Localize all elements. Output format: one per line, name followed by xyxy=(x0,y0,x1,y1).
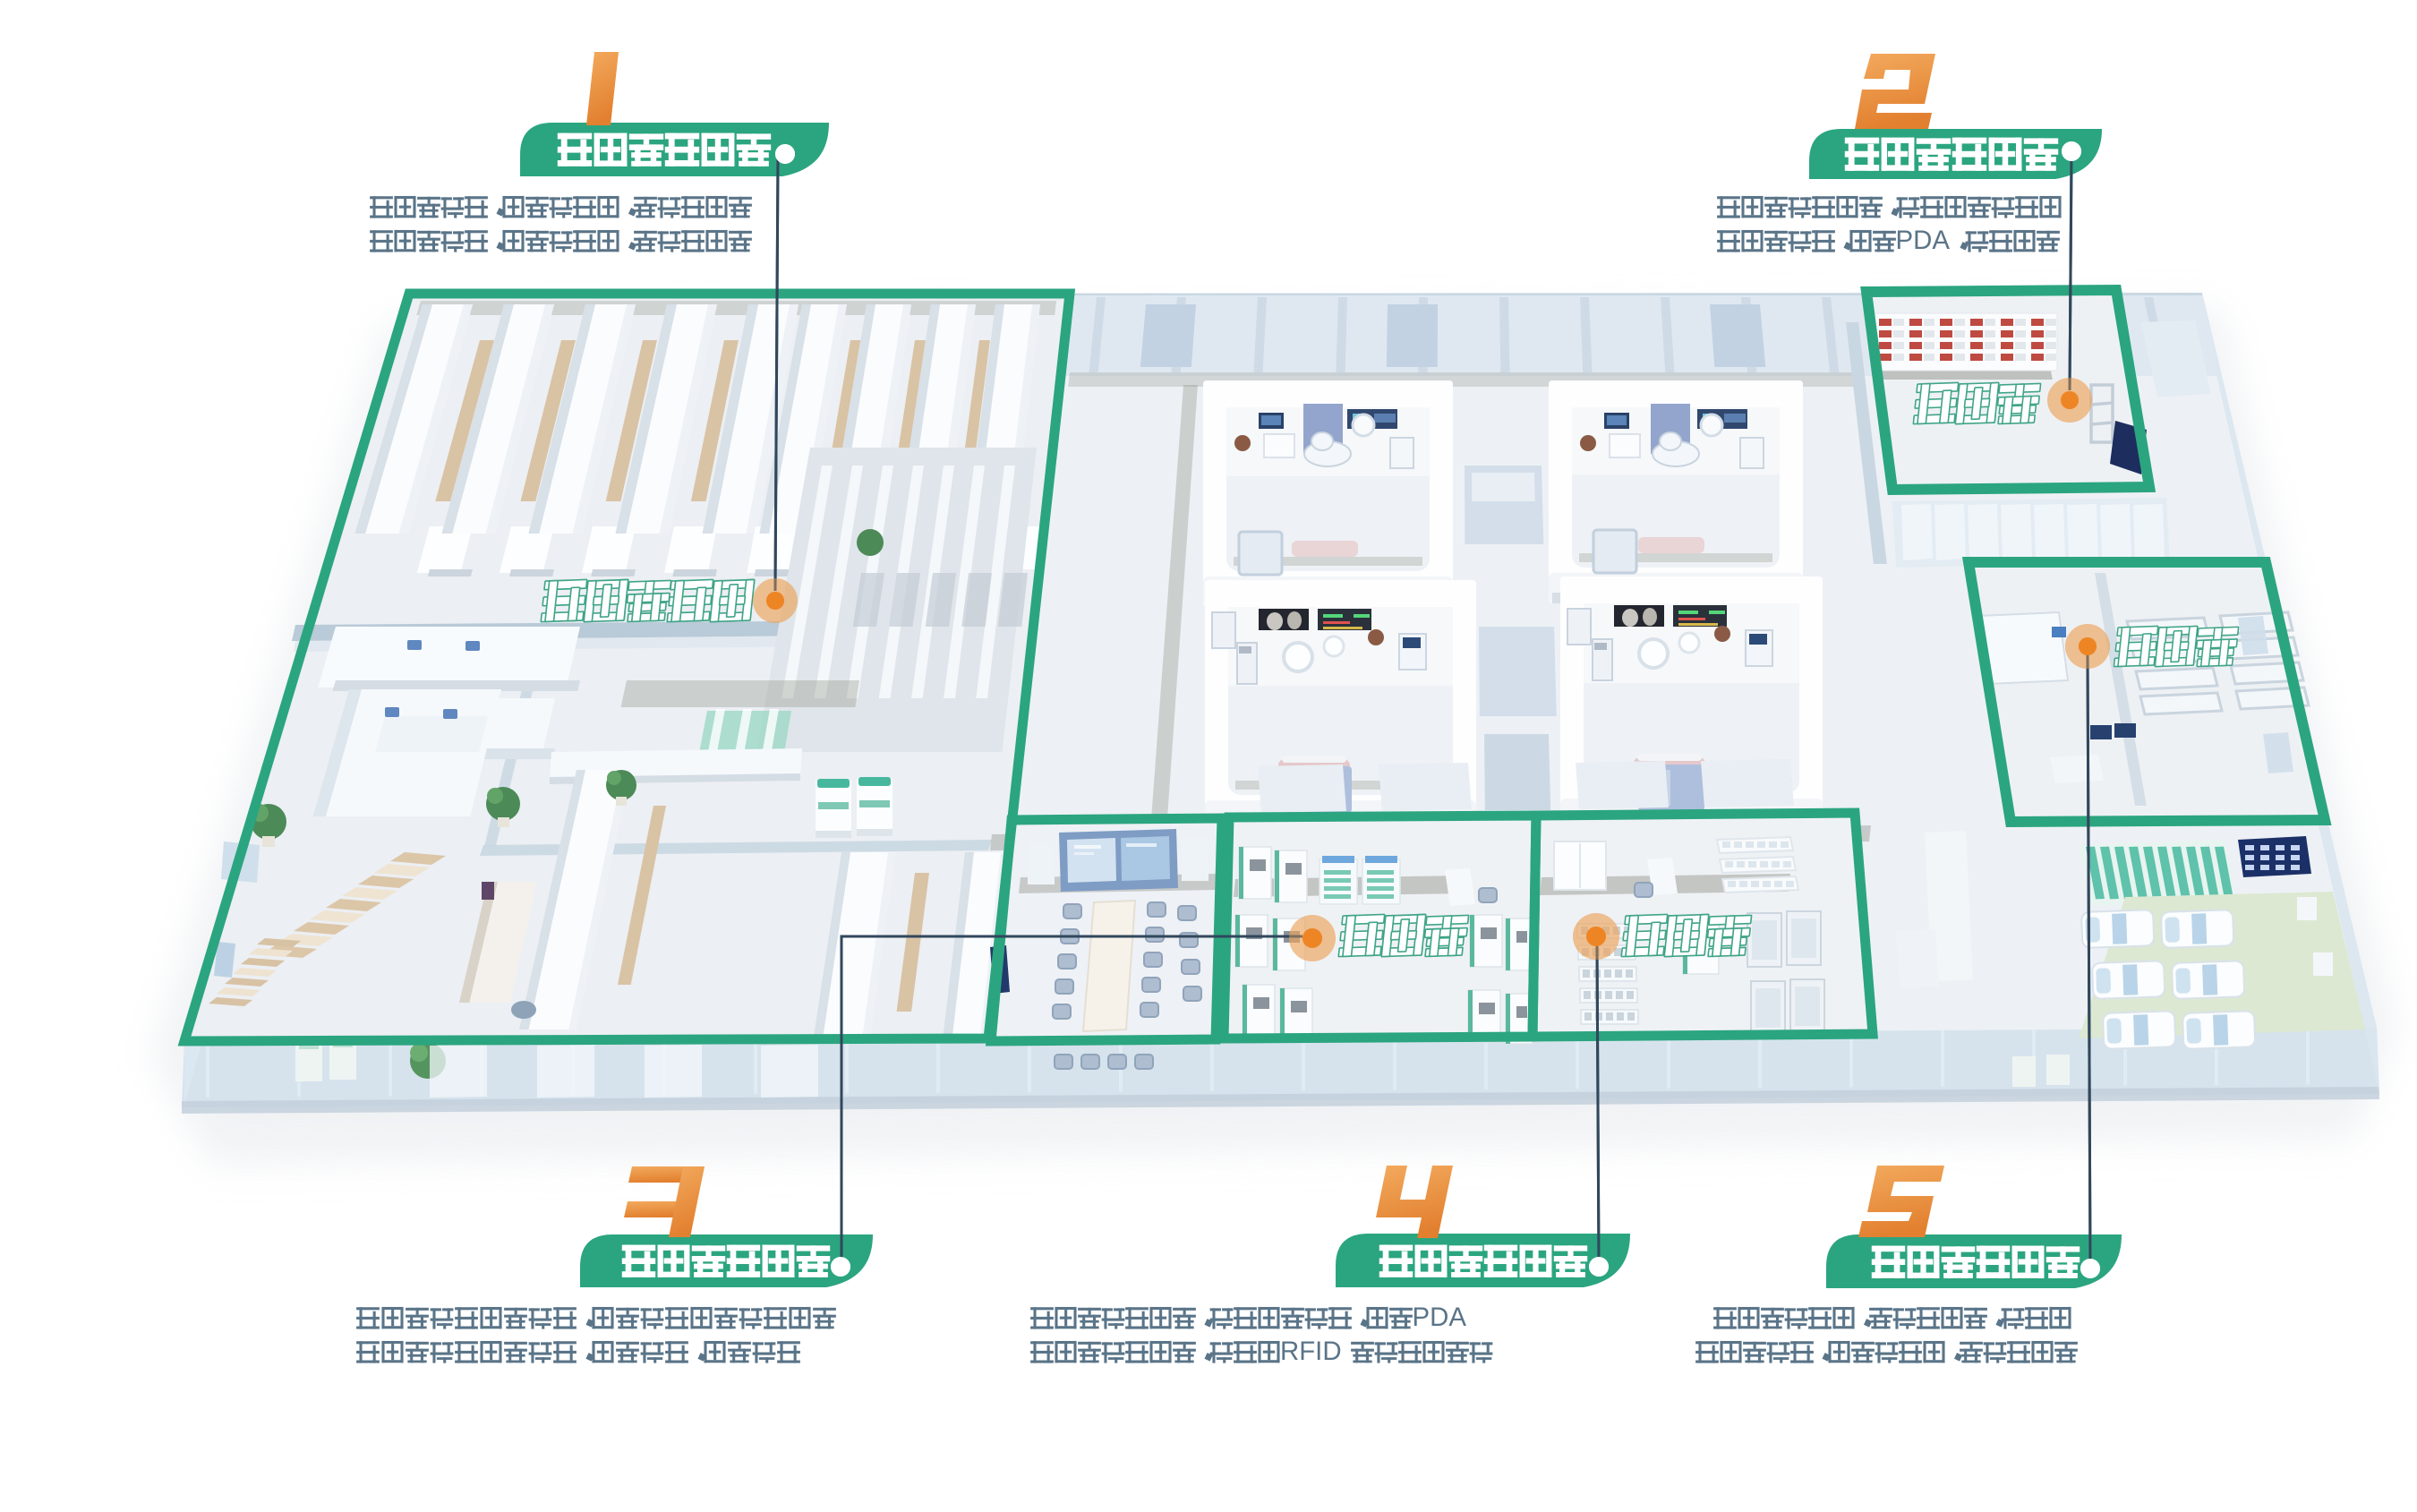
svg-text:PDA: PDA xyxy=(1413,1303,1467,1332)
svg-text:PDA: PDA xyxy=(1896,226,1951,255)
svg-text:RFID: RFID xyxy=(1280,1337,1342,1366)
